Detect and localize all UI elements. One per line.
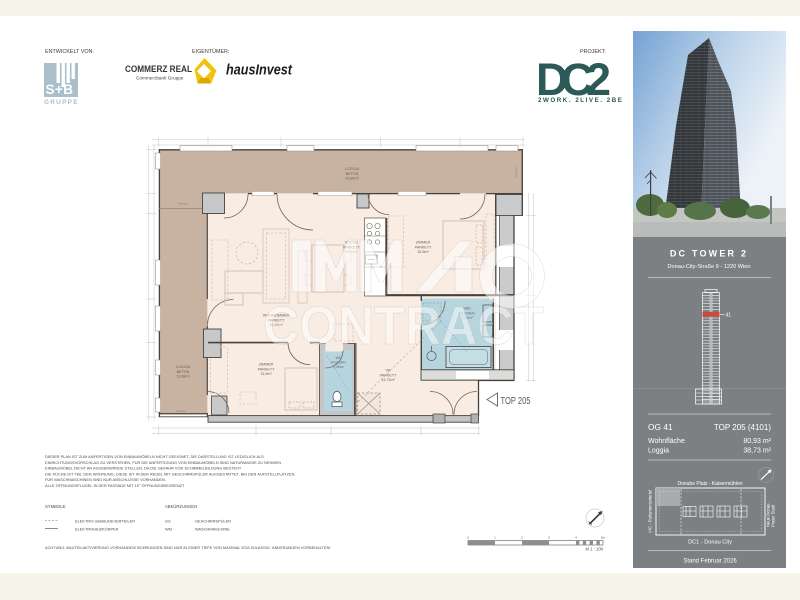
svg-text:BETON: BETON <box>346 172 359 176</box>
svg-text:13,9m²: 13,9m² <box>260 372 272 376</box>
svg-text:FÜR WASCHMASCHINEN SIND NUR AN: FÜR WASCHMASCHINEN SIND NUR ANSCHLÜSSE V… <box>45 477 166 482</box>
svg-text:WASCHMASCHINE: WASCHMASCHINE <box>195 526 230 531</box>
svg-text:Wohnfläche: Wohnfläche <box>648 438 685 445</box>
svg-text:EIGENTÜMER:: EIGENTÜMER: <box>192 48 229 55</box>
svg-text:ELEKTRO-GEBÄUDEVERTEILER: ELEKTRO-GEBÄUDEVERTEILER <box>75 518 135 523</box>
svg-text:M 1 : 100: M 1 : 100 <box>586 547 604 552</box>
svg-text:DIESER PLAN IST ZUM ANFERTIGEN: DIESER PLAN IST ZUM ANFERTIGEN VON EINBA… <box>45 454 264 459</box>
svg-text:Stand Februar 2026: Stand Februar 2026 <box>683 559 737 565</box>
svg-text:15,5m²: 15,5m² <box>417 250 429 254</box>
svg-text:EINRICHTUNGSVORSCHLAG ZU VERST: EINRICHTUNGSVORSCHLAG ZU VERSTEHEN, FÜR … <box>45 460 281 465</box>
svg-text:ALLE ÖFFNUNGSFLÜGEL IN DER FAS: ALLE ÖFFNUNGSFLÜGEL IN DER FASSADE MIT 1… <box>45 483 185 488</box>
svg-text:ZIMMER: ZIMMER <box>416 241 431 245</box>
svg-text:EINBAUMÖBEL NICHT AN AUSSENWÄN: EINBAUMÖBEL NICHT AN AUSSENWÄNDE STELLEN… <box>45 466 242 471</box>
svg-text:BETON: BETON <box>177 370 190 374</box>
svg-text:PARKETT: PARKETT <box>415 245 432 249</box>
svg-text:COMMERZ REAL: COMMERZ REAL <box>125 63 192 74</box>
svg-text:Donube Platz - Kaisermühlen: Donube Platz - Kaisermühlen <box>677 481 742 487</box>
svg-text:DC TOWER 2: DC TOWER 2 <box>670 249 748 259</box>
svg-text:41: 41 <box>726 313 732 319</box>
svg-text:SYMBOLE:: SYMBOLE: <box>45 504 66 509</box>
svg-text:2WORK. 2LIVE. 2BE: 2WORK. 2LIVE. 2BE <box>538 97 624 104</box>
svg-text:Commerzbank Gruppe: Commerzbank Gruppe <box>136 76 184 81</box>
svg-text:PARKETT: PARKETT <box>258 367 275 371</box>
svg-text:VIC - Parlamentsviertel: VIC - Parlamentsviertel <box>648 490 653 533</box>
svg-text:Parapet: Parapet <box>178 202 188 206</box>
svg-text:Prater Stadt: Prater Stadt <box>771 504 776 527</box>
svg-text:VR: VR <box>385 369 390 373</box>
svg-text:S+B: S+B <box>46 82 74 97</box>
svg-text:Donau-City-Straße 9 - 1220 Wie: Donau-City-Straße 9 - 1220 Wien <box>667 264 750 270</box>
svg-text:TOP 205 (4101): TOP 205 (4101) <box>714 423 771 432</box>
svg-text:TOP 205: TOP 205 <box>501 396 531 407</box>
svg-text:Parapet: Parapet <box>514 167 518 177</box>
svg-text:5m: 5m <box>601 536 606 540</box>
svg-text:24,85m²: 24,85m² <box>345 177 359 181</box>
svg-text:38,73 m²: 38,73 m² <box>743 448 771 455</box>
svg-text:2,26m²: 2,26m² <box>333 365 344 369</box>
svg-text:OG 41: OG 41 <box>648 422 673 432</box>
svg-text:13,73m²: 13,73m² <box>381 378 395 382</box>
svg-text:ZIMMER: ZIMMER <box>259 363 274 367</box>
svg-text:ENTWICKELT VON:: ENTWICKELT VON: <box>45 49 94 55</box>
svg-text:Parapet: Parapet <box>176 409 186 413</box>
svg-text:80,93 m²: 80,93 m² <box>743 438 771 445</box>
svg-text:LOGGIA: LOGGIA <box>176 365 191 369</box>
svg-text:CONTRACT: CONTRACT <box>263 296 544 356</box>
svg-text:PARKETT: PARKETT <box>380 373 397 377</box>
svg-text:13,88m²: 13,88m² <box>176 375 190 379</box>
svg-text:ELEKTROHEIZKÖRPER: ELEKTROHEIZKÖRPER <box>75 526 119 531</box>
svg-text:Loggia: Loggia <box>648 448 669 455</box>
svg-text:ACHTUNG: BAUTEILAKTIVIERUNG VO: ACHTUNG: BAUTEILAKTIVIERUNG VORHANDEN! B… <box>45 545 331 550</box>
svg-text:WM: WM <box>165 526 172 531</box>
svg-text:ABKÜRZUNGEN: ABKÜRZUNGEN <box>165 504 197 509</box>
svg-text:DIE KÜCHE IST TEIL DER WOHNUNG: DIE KÜCHE IST TEIL DER WOHNUNG, DIESE IS… <box>45 471 295 476</box>
svg-text:WC: WC <box>336 356 342 360</box>
svg-text:hausInvest: hausInvest <box>226 63 293 79</box>
svg-text:LOGGIA: LOGGIA <box>345 167 360 171</box>
svg-text:GS: GS <box>165 518 171 523</box>
svg-text:GRUPPE: GRUPPE <box>44 99 79 106</box>
svg-text:GESCHIRRSPÜLER: GESCHIRRSPÜLER <box>195 518 231 523</box>
svg-text:DC1 - Donau City: DC1 - Donau City <box>688 540 732 546</box>
svg-text:FLIESEN: FLIESEN <box>331 361 346 365</box>
